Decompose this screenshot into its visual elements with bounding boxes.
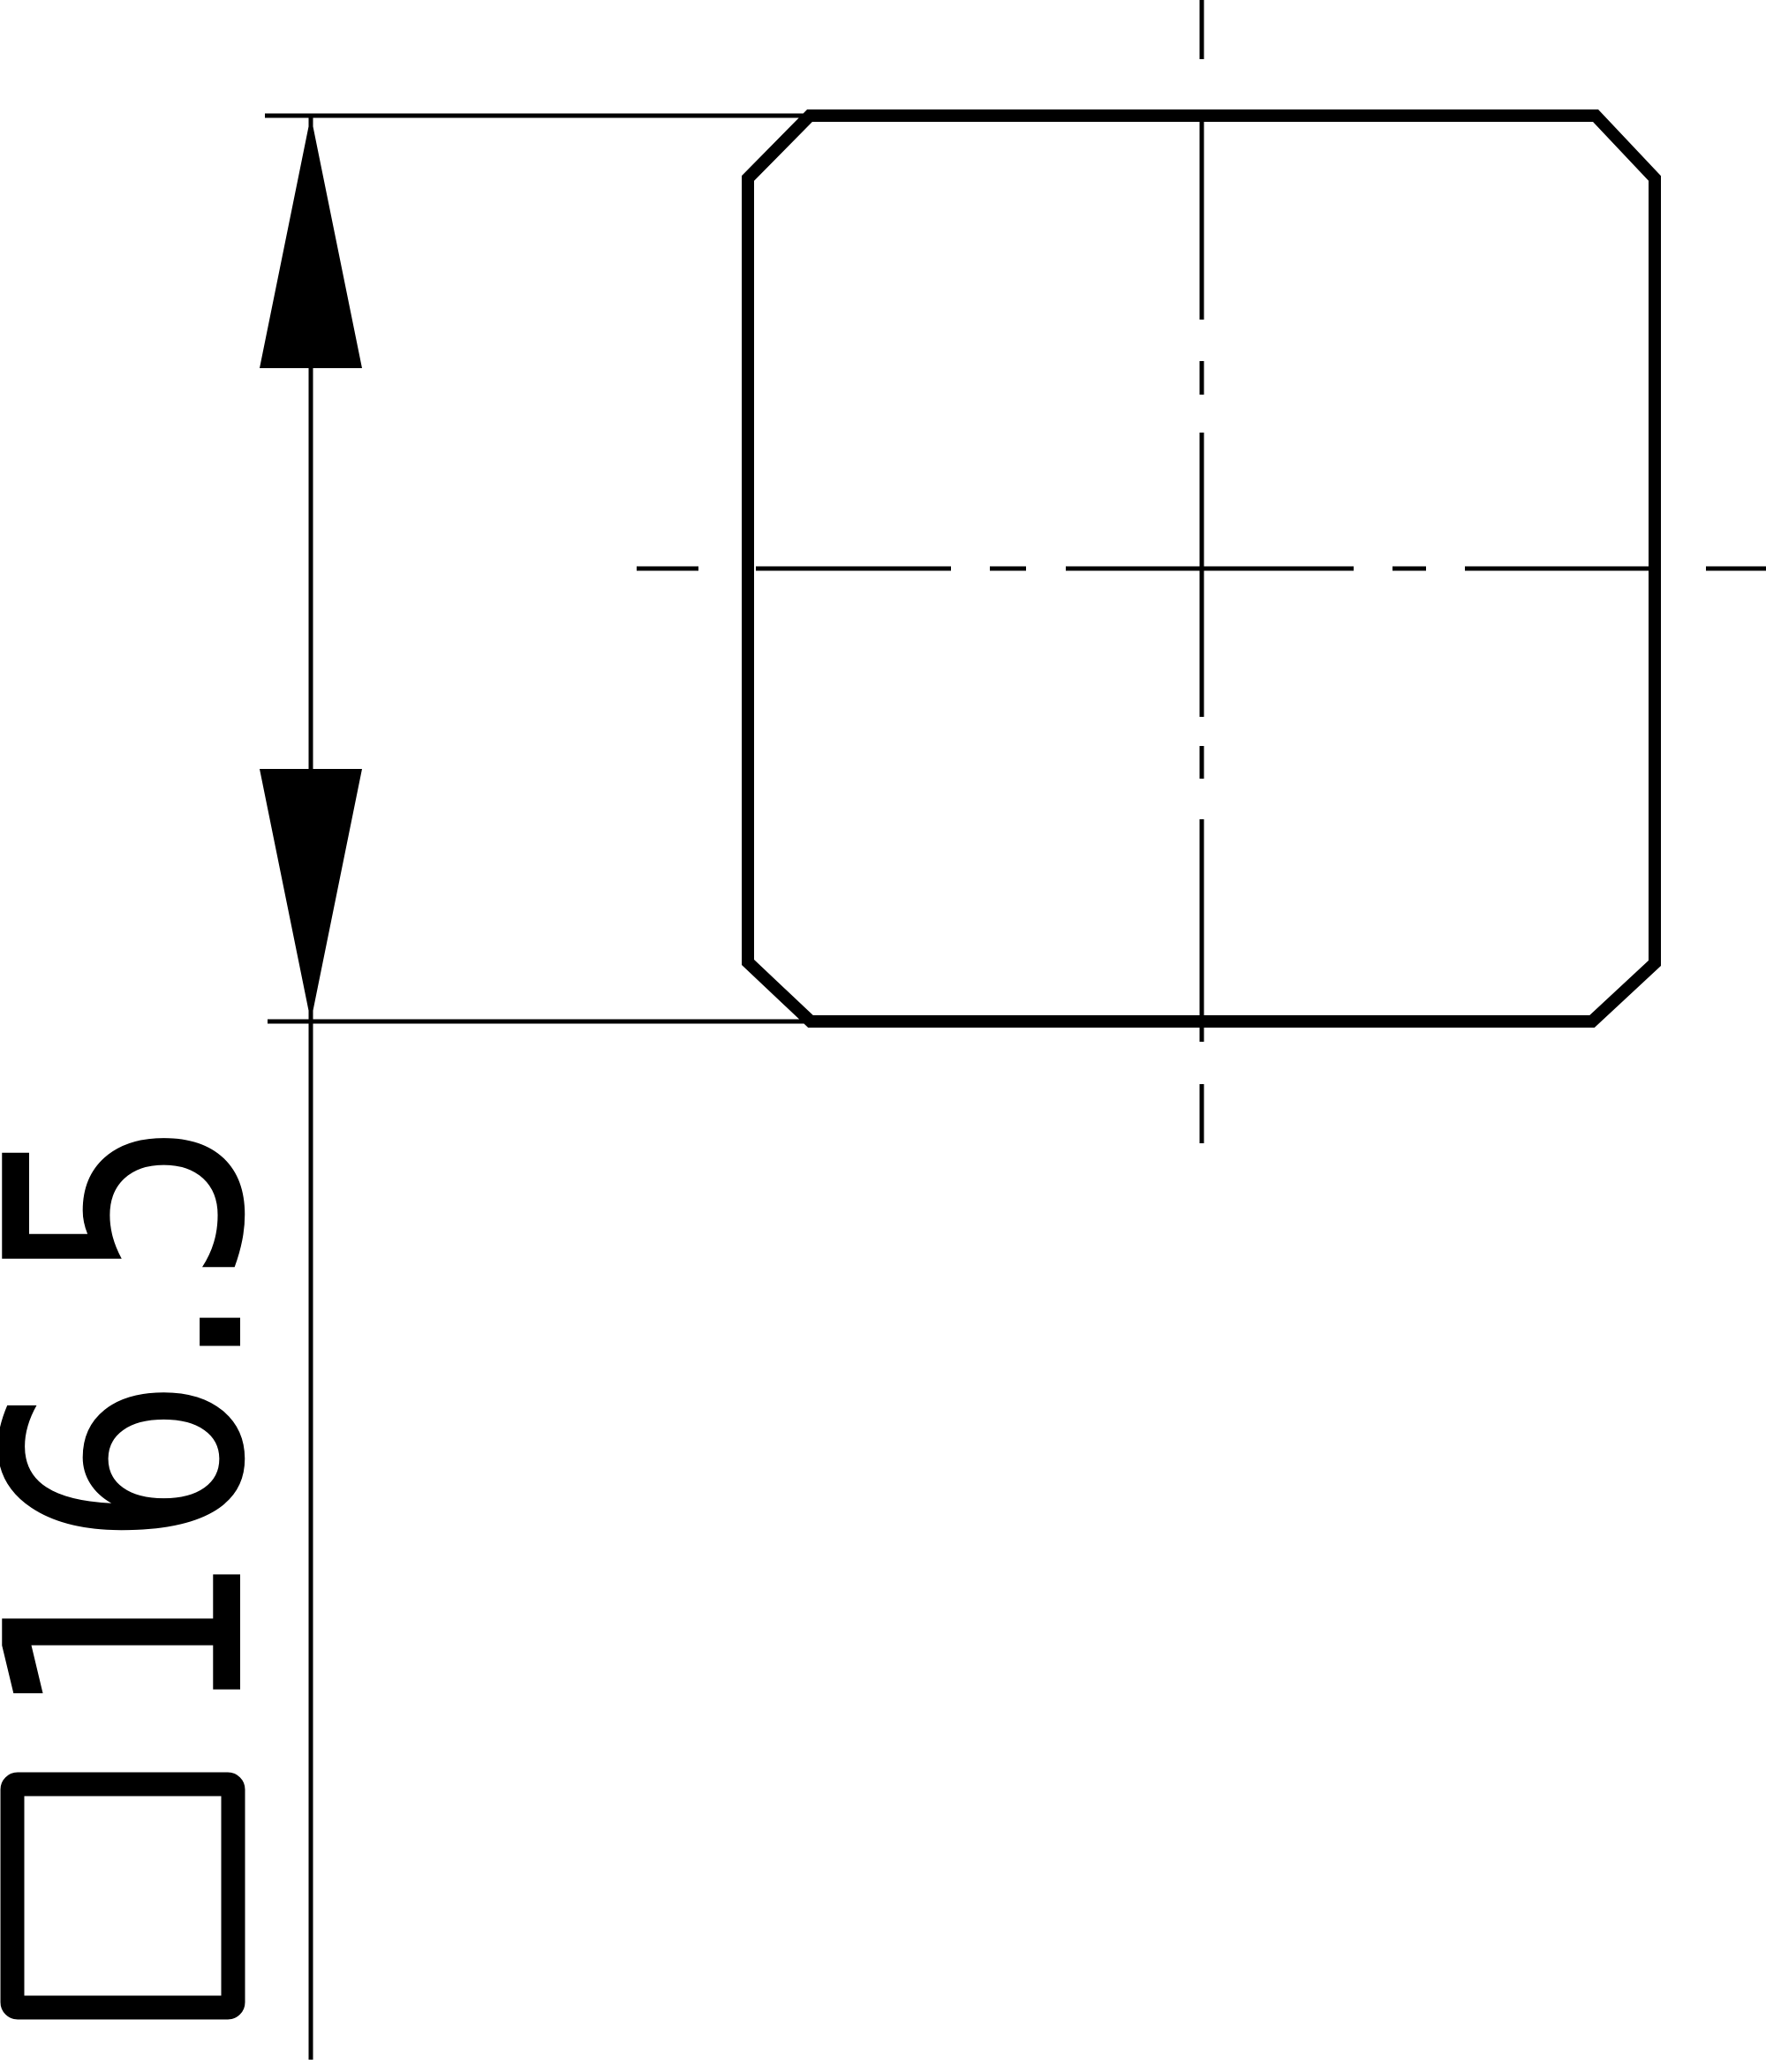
drawing-sheet: 16.5	[0, 0, 1766, 2072]
technical-drawing: 16.5	[0, 0, 1766, 2072]
square-dimension-symbol-icon	[12, 1784, 233, 2008]
dimension-arrowhead-up-icon	[260, 116, 362, 368]
dimension-arrowhead-down-icon	[260, 769, 362, 1021]
dimension-value-text: 16.5	[0, 1114, 318, 1723]
